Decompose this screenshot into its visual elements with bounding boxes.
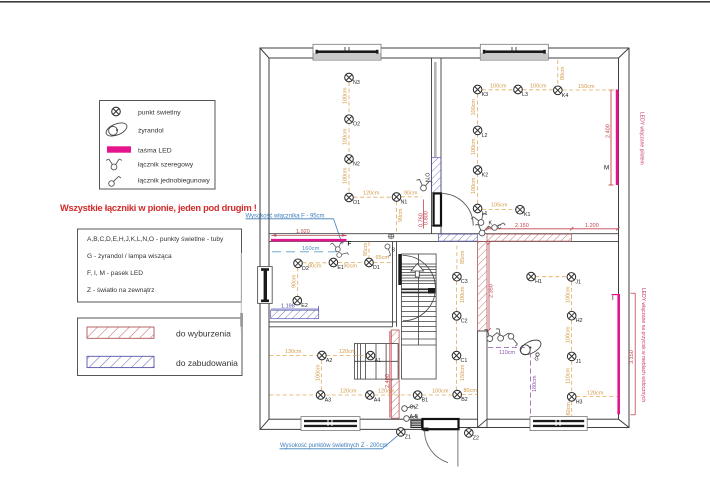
svg-text:100cm: 100cm — [460, 286, 466, 303]
svg-text:łącznik jednobiegunowy: łącznik jednobiegunowy — [138, 177, 210, 184]
svg-text:2.400: 2.400 — [606, 124, 612, 138]
svg-text:100cm: 100cm — [490, 84, 507, 90]
svg-text:B: B — [392, 248, 396, 254]
svg-text:L3: L3 — [522, 92, 528, 98]
svg-text:100cm: 100cm — [343, 128, 349, 145]
svg-text:100cm: 100cm — [471, 99, 477, 116]
svg-text:90cm: 90cm — [404, 191, 418, 197]
svg-text:2.350: 2.350 — [489, 284, 495, 298]
svg-text:E1: E1 — [337, 265, 344, 271]
svg-text:85cm: 85cm — [460, 250, 466, 264]
svg-text:Wysokość punktów świetlnych Z: Wysokość punktów świetlnych Z - 200cm — [280, 443, 388, 449]
svg-text:130cm: 130cm — [285, 349, 302, 355]
svg-text:110cm: 110cm — [499, 350, 516, 356]
svg-text:110cm: 110cm — [566, 367, 572, 384]
svg-text:J1: J1 — [575, 279, 581, 285]
svg-text:Z - światło na zewnątrz: Z - światło na zewnątrz — [87, 287, 154, 294]
svg-text:A1: A1 — [375, 358, 382, 364]
svg-text:2.400: 2.400 — [385, 374, 391, 388]
svg-text:Z2: Z2 — [473, 435, 479, 441]
svg-text:N3: N3 — [353, 80, 360, 86]
svg-text:łącznik szeregowy: łącznik szeregowy — [138, 161, 194, 168]
svg-text:0.760: 0.760 — [419, 213, 425, 227]
svg-text:90cm: 90cm — [292, 274, 298, 288]
svg-text:taśma LED: taśma LED — [138, 147, 172, 154]
svg-text:K1: K1 — [524, 212, 531, 218]
svg-text:C1: C1 — [461, 358, 468, 364]
svg-text:180cm: 180cm — [532, 375, 538, 392]
svg-text:A3: A3 — [325, 398, 332, 404]
svg-text:C: C — [498, 225, 502, 231]
svg-text:żyrandol: żyrandol — [138, 127, 164, 134]
svg-text:H3: H3 — [576, 399, 583, 405]
svg-text:100cm: 100cm — [566, 286, 572, 303]
svg-text:do wyburzenia: do wyburzenia — [176, 329, 231, 339]
svg-text:LEDY włączane na przycisk w me: LEDY włączane na przycisk w meblach wido… — [640, 288, 646, 402]
svg-text:K4: K4 — [562, 93, 569, 99]
svg-text:85cm: 85cm — [363, 242, 369, 256]
svg-text:D1: D1 — [373, 265, 380, 271]
svg-text:LEDY włączane pilotem: LEDY włączane pilotem — [639, 112, 645, 165]
svg-text:M: M — [604, 165, 609, 172]
svg-text:I: I — [612, 295, 614, 302]
svg-text:L2: L2 — [482, 133, 488, 139]
svg-text:100cm: 100cm — [343, 87, 349, 104]
svg-text:A,B: A,B — [410, 414, 419, 420]
svg-text:G: G — [535, 357, 539, 363]
svg-text:A,B,C,D,E,H,J,K,L,N,O - punkty: A,B,C,D,E,H,J,K,L,N,O - punkty świetlne … — [87, 236, 224, 243]
svg-text:100cm: 100cm — [471, 138, 477, 155]
svg-text:O,Z: O,Z — [410, 405, 420, 411]
svg-text:N2: N2 — [353, 162, 360, 168]
svg-text:D2: D2 — [302, 266, 309, 272]
svg-text:100cm: 100cm — [316, 364, 322, 381]
svg-text:90cm: 90cm — [344, 263, 358, 269]
svg-text:C3: C3 — [461, 279, 468, 285]
svg-text:N1: N1 — [401, 200, 408, 206]
svg-text:K3: K3 — [482, 92, 489, 98]
svg-text:F, I, M - pasek LED: F, I, M - pasek LED — [87, 270, 143, 277]
svg-text:Z1: Z1 — [405, 434, 411, 440]
svg-text:B2: B2 — [461, 397, 468, 403]
svg-text:N,O: N,O — [426, 173, 432, 182]
svg-text:120cm: 120cm — [587, 391, 604, 397]
svg-text:do zabudowania: do zabudowania — [176, 358, 238, 368]
svg-text:2.150: 2.150 — [515, 223, 529, 229]
svg-text:60cm: 60cm — [566, 402, 572, 416]
svg-text:80cm: 80cm — [560, 66, 566, 80]
svg-text:H1: H1 — [535, 279, 542, 285]
svg-text:F: F — [348, 241, 352, 248]
svg-text:65cm: 65cm — [376, 255, 390, 261]
svg-text:120cm: 120cm — [339, 349, 356, 355]
svg-text:120cm: 120cm — [363, 191, 380, 197]
svg-text:120cm: 120cm — [378, 389, 395, 395]
svg-text:100cm: 100cm — [432, 389, 449, 395]
svg-text:B1: B1 — [422, 398, 429, 404]
svg-text:C2: C2 — [461, 318, 468, 324]
svg-text:Wszystkie łączniki w pionie, j: Wszystkie łączniki w pionie, jeden pod d… — [60, 203, 257, 213]
svg-text:150cm: 150cm — [578, 84, 595, 90]
svg-text:A2: A2 — [326, 358, 333, 364]
svg-text:3.150: 3.150 — [629, 350, 635, 364]
svg-text:120cm: 120cm — [340, 389, 357, 395]
svg-text:E2: E2 — [301, 303, 308, 309]
svg-text:1.200: 1.200 — [585, 223, 599, 229]
svg-text:1.920: 1.920 — [296, 229, 310, 235]
svg-text:90cm: 90cm — [398, 208, 404, 222]
svg-text:100cm: 100cm — [566, 326, 572, 343]
svg-text:100cm: 100cm — [471, 177, 477, 194]
svg-text:105cm: 105cm — [491, 203, 508, 209]
svg-text:H2: H2 — [576, 318, 583, 324]
svg-text:80cm: 80cm — [464, 388, 478, 394]
svg-text:G - żyrandol / lampa wisząca: G - żyrandol / lampa wisząca — [87, 253, 172, 260]
svg-text:punkt świetlny: punkt świetlny — [138, 109, 181, 116]
svg-text:O1: O1 — [353, 200, 360, 206]
svg-text:90cm: 90cm — [308, 263, 322, 269]
svg-text:K2: K2 — [482, 173, 489, 179]
svg-text:160cm: 160cm — [302, 246, 320, 252]
svg-text:J1: J1 — [576, 359, 582, 365]
svg-text:O2: O2 — [353, 122, 360, 128]
svg-text:A4: A4 — [374, 398, 381, 404]
svg-text:1.198: 1.198 — [281, 304, 295, 310]
svg-text:100cm: 100cm — [343, 167, 349, 184]
svg-text:150cm: 150cm — [460, 364, 466, 381]
svg-text:100cm: 100cm — [530, 84, 547, 90]
